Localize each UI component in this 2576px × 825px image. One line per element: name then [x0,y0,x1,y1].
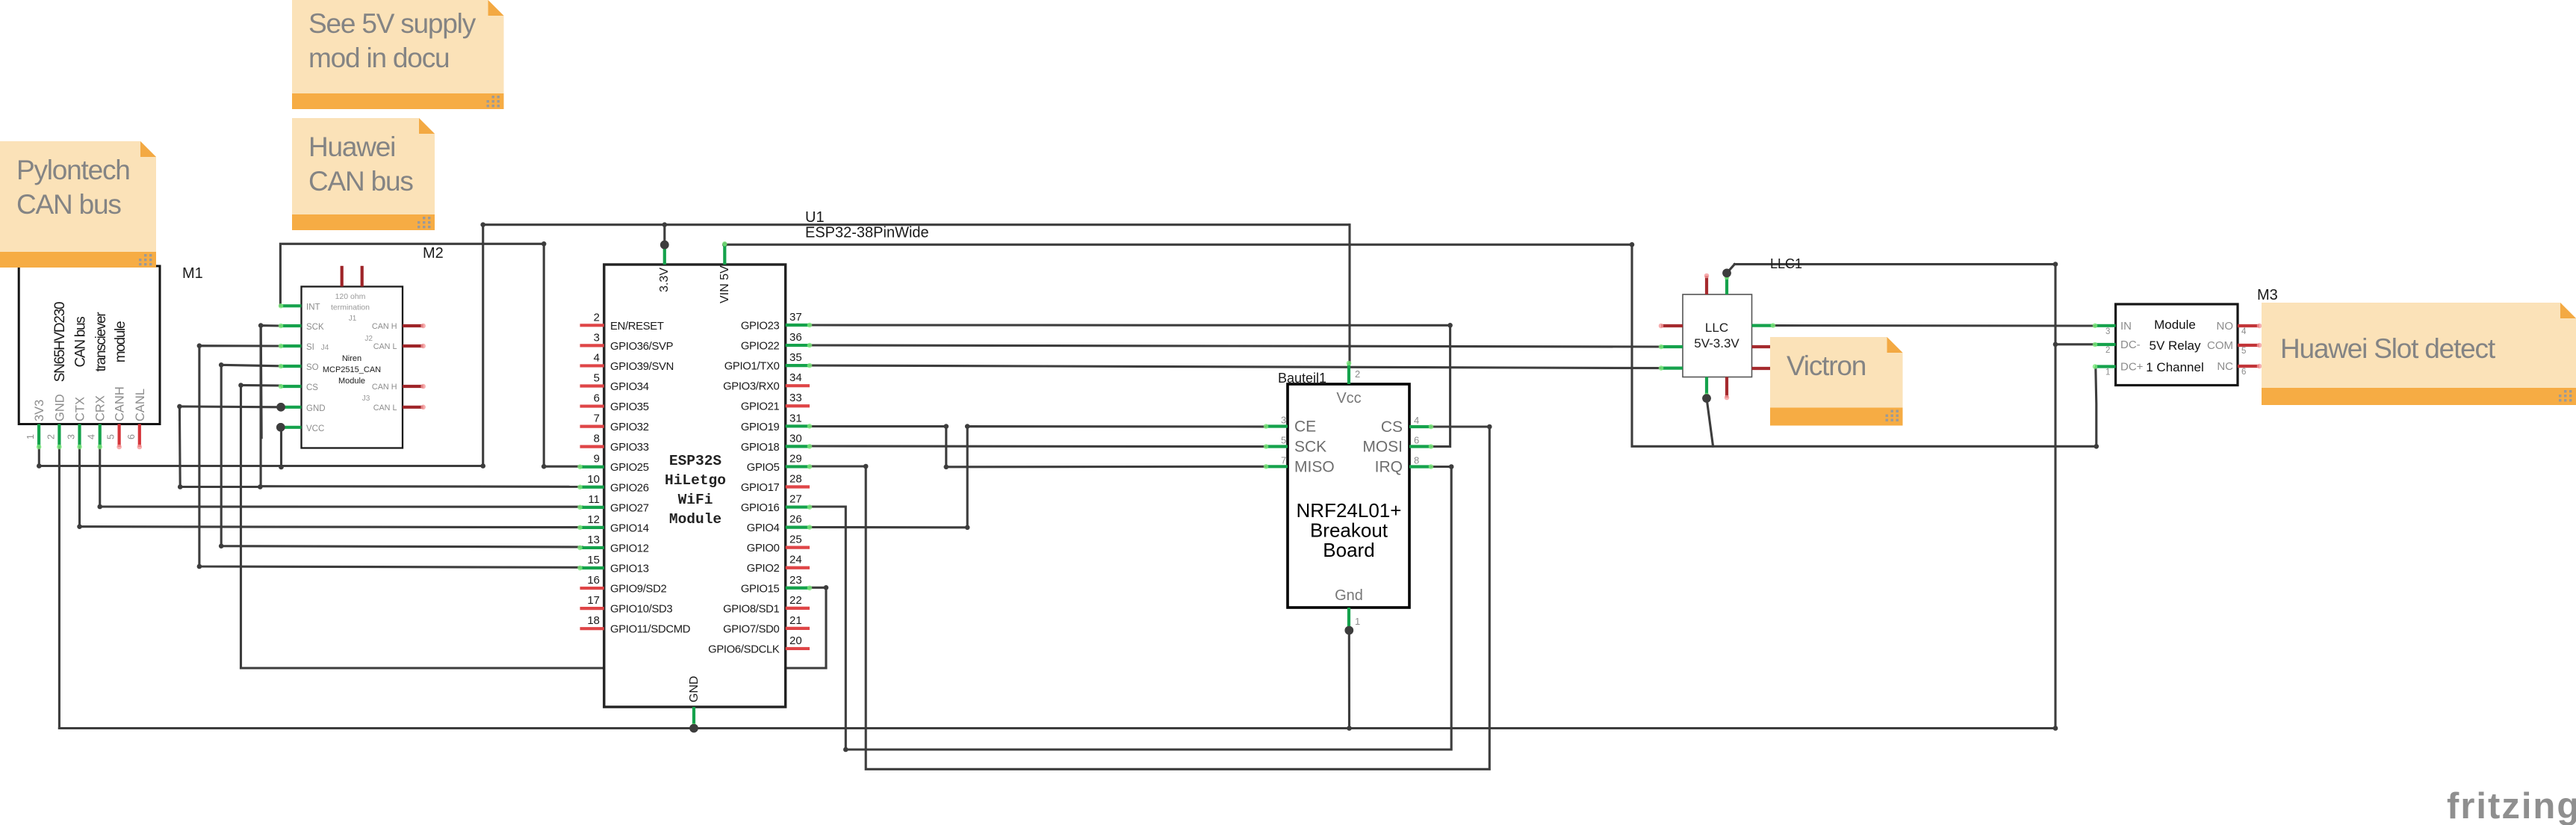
svg-text:GPIO14: GPIO14 [610,522,649,534]
svg-text:Gnd: Gnd [1335,587,1363,604]
svg-text:GPIO23: GPIO23 [741,321,780,333]
svg-text:4: 4 [1414,415,1419,426]
svg-text:CAN L: CAN L [373,342,397,351]
svg-text:CANL: CANL [134,389,147,421]
svg-text:7: 7 [1281,454,1286,466]
svg-text:GPIO35: GPIO35 [610,401,649,413]
svg-text:GPIO5: GPIO5 [747,462,780,474]
svg-text:CTX: CTX [74,397,87,421]
svg-text:GPIO4: GPIO4 [747,522,780,534]
svg-text:CAN bus: CAN bus [16,189,121,220]
svg-text:3V3: 3V3 [33,400,46,421]
svg-text:GPIO34: GPIO34 [610,381,649,393]
svg-text:5: 5 [1281,435,1286,446]
svg-text:5: 5 [594,371,600,384]
svg-text:GND: GND [53,394,66,421]
svg-text:GPIO3/RX0: GPIO3/RX0 [723,381,779,393]
svg-text:M2: M2 [423,245,444,262]
svg-text:20: 20 [789,634,802,647]
svg-text:GPIO7/SD0: GPIO7/SD0 [723,623,779,635]
svg-text:26: 26 [789,513,802,526]
svg-text:CAN L: CAN L [373,404,397,412]
svg-text:23: 23 [789,574,802,587]
svg-text:GPIO33: GPIO33 [610,442,649,454]
svg-text:2: 2 [1355,368,1360,380]
svg-text:6: 6 [1414,435,1419,446]
svg-text:17: 17 [587,594,600,607]
svg-text:2: 2 [594,311,600,324]
svg-text:HiLetgo: HiLetgo [665,472,726,489]
svg-text:GPIO22: GPIO22 [741,341,780,353]
svg-text:See 5V supply: See 5V supply [308,8,477,39]
svg-text:GPIO1/TX0: GPIO1/TX0 [724,361,780,373]
svg-text:37: 37 [789,311,802,324]
svg-text:GPIO0: GPIO0 [747,543,780,554]
svg-text:Niren: Niren [342,354,361,363]
svg-text:GPIO13: GPIO13 [610,563,649,575]
svg-text:DC-: DC- [2120,339,2141,351]
svg-text:27: 27 [789,493,802,506]
svg-text:CAN H: CAN H [372,322,397,331]
svg-text:CE: CE [1294,418,1316,436]
svg-text:GPIO16: GPIO16 [741,502,780,514]
svg-text:9: 9 [594,453,600,466]
svg-text:12: 12 [587,513,600,526]
svg-text:CS: CS [306,383,318,392]
svg-text:SO: SO [306,363,319,372]
svg-text:11: 11 [588,493,600,506]
svg-text:3: 3 [594,331,600,344]
svg-text:24: 24 [789,554,802,566]
svg-text:GPIO10/SD3: GPIO10/SD3 [610,604,672,616]
svg-text:5V-3.3V: 5V-3.3V [1694,336,1739,350]
svg-text:18: 18 [587,614,600,627]
svg-text:28: 28 [789,472,802,485]
svg-text:GPIO15: GPIO15 [741,583,780,595]
svg-text:30: 30 [789,432,802,445]
svg-text:SN65HVD230: SN65HVD230 [52,302,68,382]
svg-text:35: 35 [789,351,802,364]
svg-text:CAN H: CAN H [372,383,397,392]
svg-text:2: 2 [2105,346,2110,355]
svg-text:31: 31 [789,412,802,424]
svg-text:33: 33 [789,392,802,404]
svg-text:NRF24L01+: NRF24L01+ [1297,499,1402,522]
svg-text:15: 15 [587,554,600,566]
svg-text:4: 4 [2241,327,2247,336]
svg-text:EN/RESET: EN/RESET [610,321,664,333]
svg-text:GPIO8/SD1: GPIO8/SD1 [723,603,779,615]
svg-text:MCP2515_CAN: MCP2515_CAN [323,365,381,374]
svg-text:GPIO6/SDCLK: GPIO6/SDCLK [708,643,780,655]
svg-text:GPIO27: GPIO27 [610,502,649,514]
svg-text:25: 25 [789,534,802,546]
svg-text:5V Relay: 5V Relay [2150,339,2201,353]
svg-text:GPIO25: GPIO25 [610,462,649,474]
svg-text:VCC: VCC [306,424,324,433]
svg-text:module: module [113,321,128,362]
svg-text:VIN 5V: VIN 5V [719,265,731,303]
svg-text:3: 3 [1281,415,1286,426]
svg-text:6: 6 [126,434,137,439]
svg-text:1: 1 [1355,616,1360,627]
svg-text:1 Channel: 1 Channel [2146,360,2204,374]
svg-text:J3: J3 [362,395,370,403]
svg-text:SCK: SCK [306,323,324,332]
svg-text:ESP32S: ESP32S [669,453,722,469]
svg-text:NC: NC [2217,360,2233,373]
svg-text:CAN bus: CAN bus [308,166,413,197]
svg-text:fritzing: fritzing [2447,786,2576,825]
svg-text:120 ohm: 120 ohm [335,292,366,301]
svg-text:GPIO11/SDCMD: GPIO11/SDCMD [610,624,690,636]
svg-text:29: 29 [789,452,802,465]
svg-text:8: 8 [1414,455,1419,466]
svg-text:13: 13 [587,534,600,546]
svg-text:J4: J4 [321,344,329,352]
svg-text:Module: Module [669,511,721,528]
svg-text:7: 7 [594,412,600,425]
svg-text:3.3V: 3.3V [658,268,671,292]
svg-text:GPIO26: GPIO26 [610,482,649,494]
svg-text:transciever: transciever [93,312,109,372]
svg-text:MOSI: MOSI [1362,439,1403,456]
svg-text:36: 36 [789,331,802,344]
svg-text:GPIO2: GPIO2 [747,563,780,575]
svg-text:termination: termination [331,303,370,312]
svg-text:mod in docu: mod in docu [308,43,449,73]
svg-text:CAN bus: CAN bus [73,317,89,368]
svg-text:U1: U1 [805,209,825,226]
svg-text:Module: Module [2154,318,2196,332]
svg-text:GPIO32: GPIO32 [610,421,649,433]
svg-text:Pylontech: Pylontech [16,155,130,185]
svg-text:Bauteil1: Bauteil1 [1278,371,1326,386]
svg-text:21: 21 [789,614,802,627]
svg-text:16: 16 [587,574,600,587]
svg-text:J2: J2 [364,335,373,343]
svg-text:6: 6 [2241,368,2246,377]
svg-text:LLC1: LLC1 [1770,256,1802,271]
svg-text:GPIO18: GPIO18 [741,442,780,454]
svg-text:Module: Module [338,377,365,386]
svg-text:Vcc: Vcc [1336,390,1361,407]
svg-text:SI: SI [306,343,314,352]
svg-text:Huawei: Huawei [308,132,395,162]
svg-text:4: 4 [87,434,97,439]
svg-text:GPIO19: GPIO19 [741,421,780,433]
svg-text:GPIO9/SD2: GPIO9/SD2 [610,584,666,596]
svg-text:WiFi: WiFi [678,492,713,508]
svg-text:3: 3 [66,434,77,439]
svg-text:1: 1 [25,434,36,439]
svg-text:CRX: CRX [94,395,108,421]
svg-text:22: 22 [789,594,802,607]
svg-text:CS: CS [1381,418,1403,436]
svg-text:CANH: CANH [114,386,127,421]
svg-text:GPIO12: GPIO12 [610,543,649,554]
svg-text:IN: IN [2120,320,2132,333]
svg-text:GPIO36/SVP: GPIO36/SVP [610,341,674,353]
svg-text:GPIO21: GPIO21 [741,401,780,413]
svg-text:1: 1 [2105,368,2110,377]
svg-text:8: 8 [594,433,600,445]
svg-text:5: 5 [106,434,117,439]
svg-text:SCK: SCK [1294,439,1326,456]
svg-text:IRQ: IRQ [1375,459,1403,476]
svg-text:GPIO39/SVN: GPIO39/SVN [610,361,674,373]
svg-text:DC+: DC+ [2120,361,2144,374]
svg-text:2: 2 [46,434,56,439]
svg-text:MISO: MISO [1294,458,1335,475]
svg-text:GND: GND [306,404,326,413]
svg-text:Victron: Victron [1787,350,1866,381]
svg-text:34: 34 [789,371,802,384]
svg-text:5: 5 [2241,347,2246,356]
svg-text:Board: Board [1323,539,1374,561]
svg-text:GPIO17: GPIO17 [741,482,780,494]
svg-text:J1: J1 [349,315,357,323]
svg-text:4: 4 [594,351,600,364]
svg-text:Huawei Slot detect: Huawei Slot detect [2280,333,2496,364]
svg-text:COM: COM [2207,339,2233,352]
svg-text:6: 6 [594,392,600,405]
svg-text:M3: M3 [2257,287,2278,303]
svg-text:M1: M1 [182,265,203,282]
svg-text:10: 10 [587,473,600,486]
svg-text:Breakout: Breakout [1310,519,1388,542]
svg-text:GND: GND [688,676,701,702]
svg-text:INT: INT [306,303,320,312]
svg-text:NO: NO [2217,320,2234,333]
svg-text:3: 3 [2105,327,2110,336]
svg-text:ESP32-38PinWide: ESP32-38PinWide [805,225,929,241]
svg-text:LLC: LLC [1705,321,1728,335]
